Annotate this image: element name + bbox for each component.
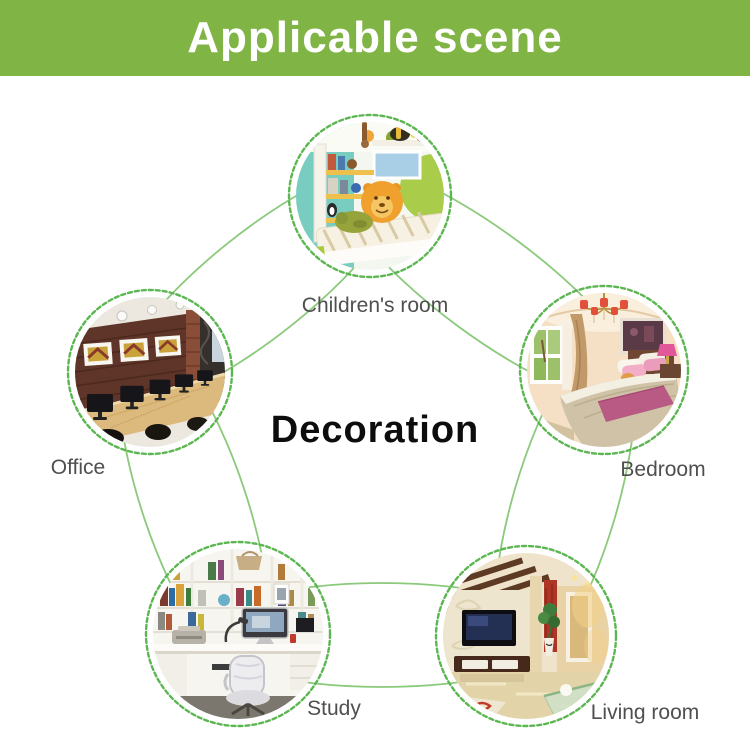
center-label: Decoration — [271, 409, 479, 452]
label-living-room: Living room — [591, 701, 700, 725]
living-room-photo — [412, 551, 609, 719]
diagram-canvas — [0, 0, 750, 750]
page: Applicable scene — [0, 0, 750, 750]
office-photo — [75, 297, 225, 447]
children-room-photo — [296, 122, 468, 270]
label-children-room: Children's room — [302, 294, 448, 318]
label-bedroom: Bedroom — [620, 458, 705, 482]
label-office: Office — [51, 456, 105, 480]
scene-diagram: Decoration Children's room Office Bedroo… — [0, 0, 750, 750]
label-study: Study — [307, 697, 361, 721]
study-photo — [153, 549, 323, 719]
